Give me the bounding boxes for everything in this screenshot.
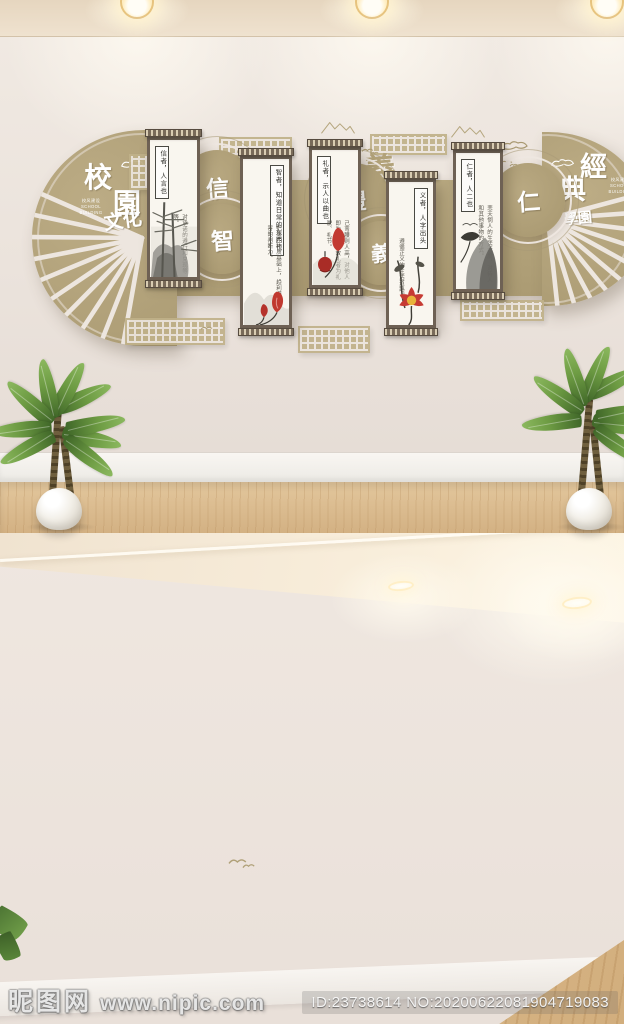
ceiling <box>0 0 624 37</box>
fan-subtitle: 文化 <box>103 209 143 233</box>
room-view-front: 校 園 校风建设 SCHOOL BUILDING 文化 <box>0 0 624 533</box>
scroll-panel-yi: 义者，人字出头 遵循正义的生活道路。 <box>386 179 436 328</box>
scroll-rod <box>307 139 363 147</box>
watermark-image-id: ID:23738614 NO:20200622081904719083 <box>302 991 618 1014</box>
scroll-rod <box>238 328 294 336</box>
plant-leaf <box>0 911 32 981</box>
panel-content: 仁者，人二也 悲天悯人的生活态度，对待人和其他事物的方式。 <box>456 153 500 289</box>
ceiling-light-icon <box>120 0 154 19</box>
potted-plant <box>536 366 624 532</box>
scroll-rod <box>451 292 505 300</box>
mountain-motif-icon <box>318 120 358 134</box>
scroll-panel-ren: 仁者，人二也 悲天悯人的生活态度，对待人和其他事物的方式。 <box>453 150 503 292</box>
scroll-rod <box>238 148 294 156</box>
fan-tagline: 校风建设 SCHOOL BUILDING <box>606 177 624 195</box>
room-view-angled: 校 園 校风建设 SCHOOL BUILDING 文化 <box>0 533 624 1024</box>
ink-art-mountain <box>457 211 500 289</box>
panel-content: 义者，人字出头 遵循正义的生活道路。 <box>389 182 433 325</box>
panel-content: 智者，知道日常的东西也 把握在物质基础上，趋利避害的判断力。 <box>243 159 289 325</box>
scroll-rod <box>307 288 363 296</box>
plant-pot <box>566 488 612 530</box>
watermark-site-name: 昵图网 <box>8 982 92 1018</box>
panel-content: 信者，人言也 对承诺的遵行和兑现等等。 <box>150 140 197 277</box>
culture-wall-slot: 校 園 校风建设 SCHOOL BUILDING 文化 <box>24 112 624 382</box>
ceiling-light-icon <box>590 0 624 19</box>
scroll-panel-xin: 信者，人言也 对承诺的遵行和兑现等等。 <box>147 137 200 280</box>
fan-tagline-en: SCHOOL BUILDING <box>606 183 624 195</box>
ink-art-lotus-lantern <box>313 223 358 285</box>
ink-art-bamboo <box>151 197 197 277</box>
birds-icon <box>200 324 220 333</box>
mockup-scene: 校 園 校风建设 SCHOOL BUILDING 文化 <box>0 0 624 1024</box>
panel-header: 信者，人言也 <box>155 146 169 199</box>
scroll-panel-li: 礼者，示人以曲也 己弯腰则人高，对他人即为有礼，故礼者为礼貌、礼节。 <box>309 147 361 288</box>
scroll-rod <box>384 171 438 179</box>
virtue-char: 智 <box>209 221 234 257</box>
fan-title-char: 校 <box>84 164 112 192</box>
mountain-motif-icon <box>445 124 491 138</box>
panel-header: 仁者，人二也 <box>461 159 475 212</box>
plant-pot <box>36 488 82 530</box>
scroll-rod <box>451 142 505 150</box>
panel-content: 礼者，示人以曲也 己弯腰则人高，对他人即为有礼，故礼者为礼貌、礼节。 <box>312 150 358 285</box>
panel-header: 义者，人字出头 <box>414 188 428 249</box>
watermark-site-url: www.nipic.com <box>100 992 265 1016</box>
scroll-rod <box>145 280 202 288</box>
lattice-decoration <box>460 300 544 321</box>
scroll-rod <box>145 129 202 137</box>
culture-wall-design: 校 園 校风建设 SCHOOL BUILDING 文化 <box>24 112 624 382</box>
scroll-panel-zhi: 智者，知道日常的东西也 把握在物质基础上，趋利避害的判断力。 <box>240 156 292 328</box>
light-glow <box>330 553 480 643</box>
birds-icon <box>226 855 260 869</box>
potted-plant <box>2 376 127 532</box>
ceiling-light-icon <box>355 0 389 19</box>
scroll-rod <box>384 328 438 336</box>
ink-art-lotus-buds <box>244 255 289 325</box>
virtue-char: 仁 <box>515 182 540 218</box>
watermark-site: 昵图网 www.nipic.com <box>8 982 265 1018</box>
panel-header: 礼者，示人以曲也 <box>317 156 331 224</box>
lattice-decoration <box>298 326 370 353</box>
ink-art-red-lotus <box>390 251 433 325</box>
